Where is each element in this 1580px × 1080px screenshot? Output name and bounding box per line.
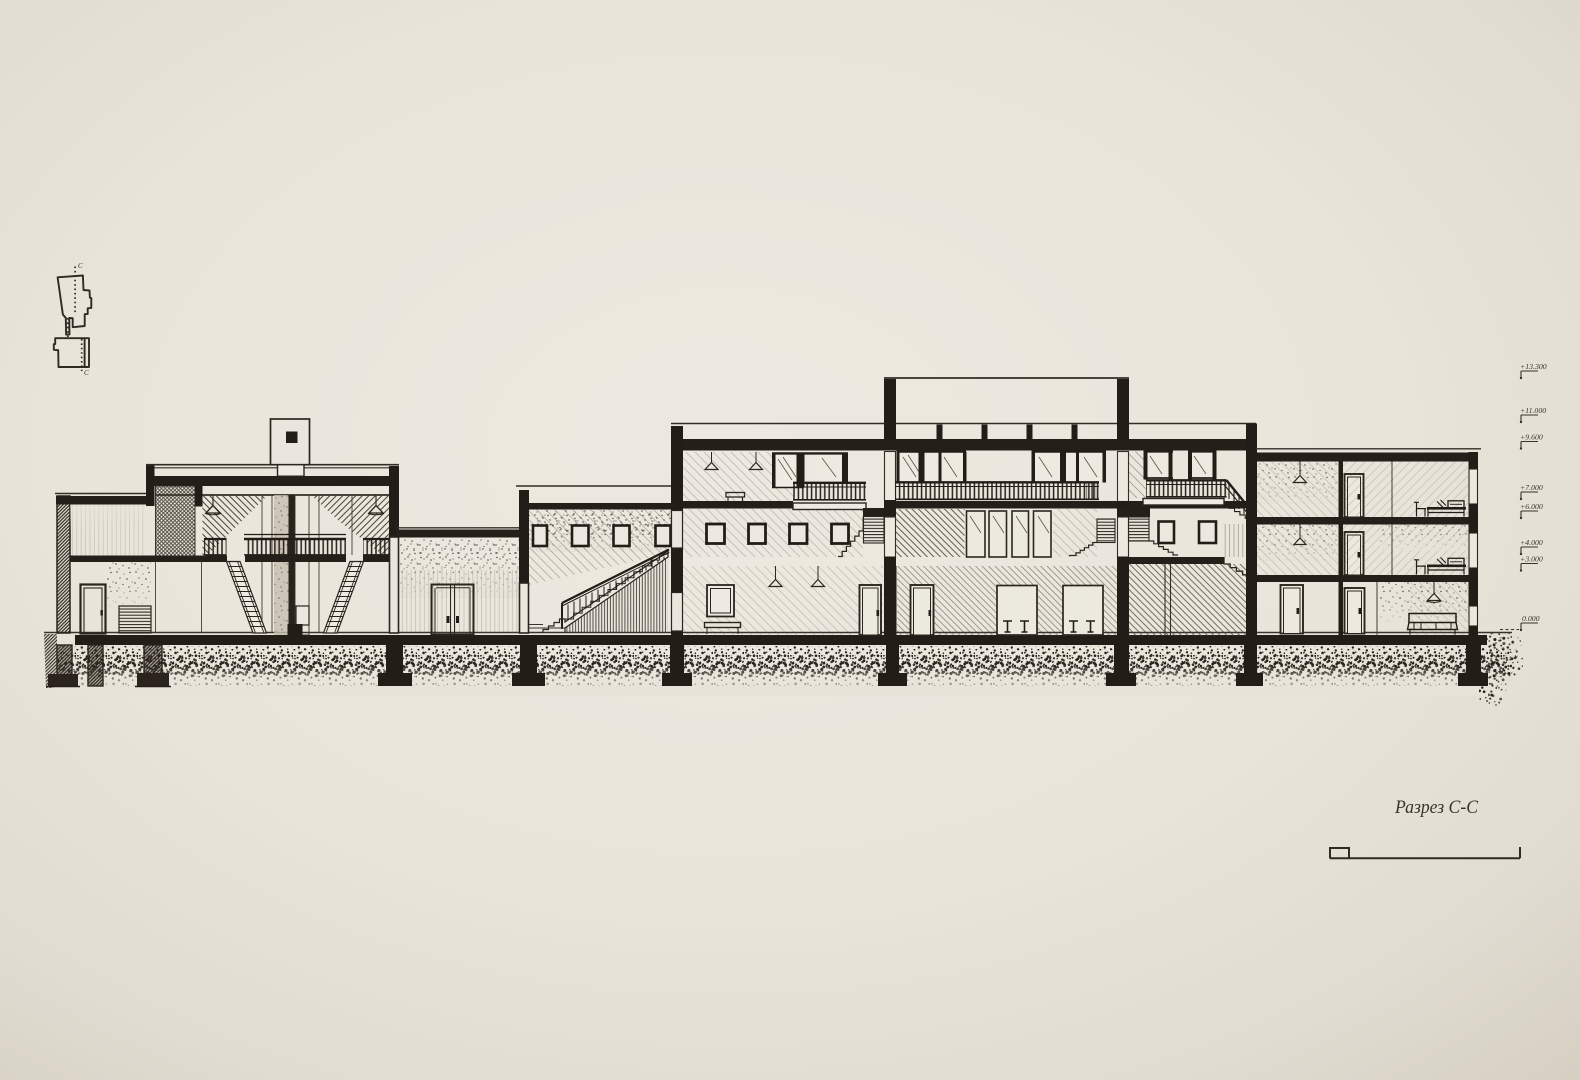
svg-text:Разрез С-С: Разрез С-С [1394,797,1478,818]
svg-text:+6.000: +6.000 [1520,502,1543,511]
svg-text:C: C [84,369,89,377]
svg-text:+3.000: +3.000 [1520,555,1543,564]
svg-text:+13.300: +13.300 [1520,362,1547,371]
svg-text:+7.000: +7.000 [1520,483,1543,492]
svg-text:+11.000: +11.000 [1520,406,1546,415]
svg-text:0.000: 0.000 [1522,614,1540,623]
svg-text:C: C [78,262,83,270]
svg-text:+4.000: +4.000 [1520,538,1543,547]
svg-text:+9.600: +9.600 [1520,433,1543,442]
